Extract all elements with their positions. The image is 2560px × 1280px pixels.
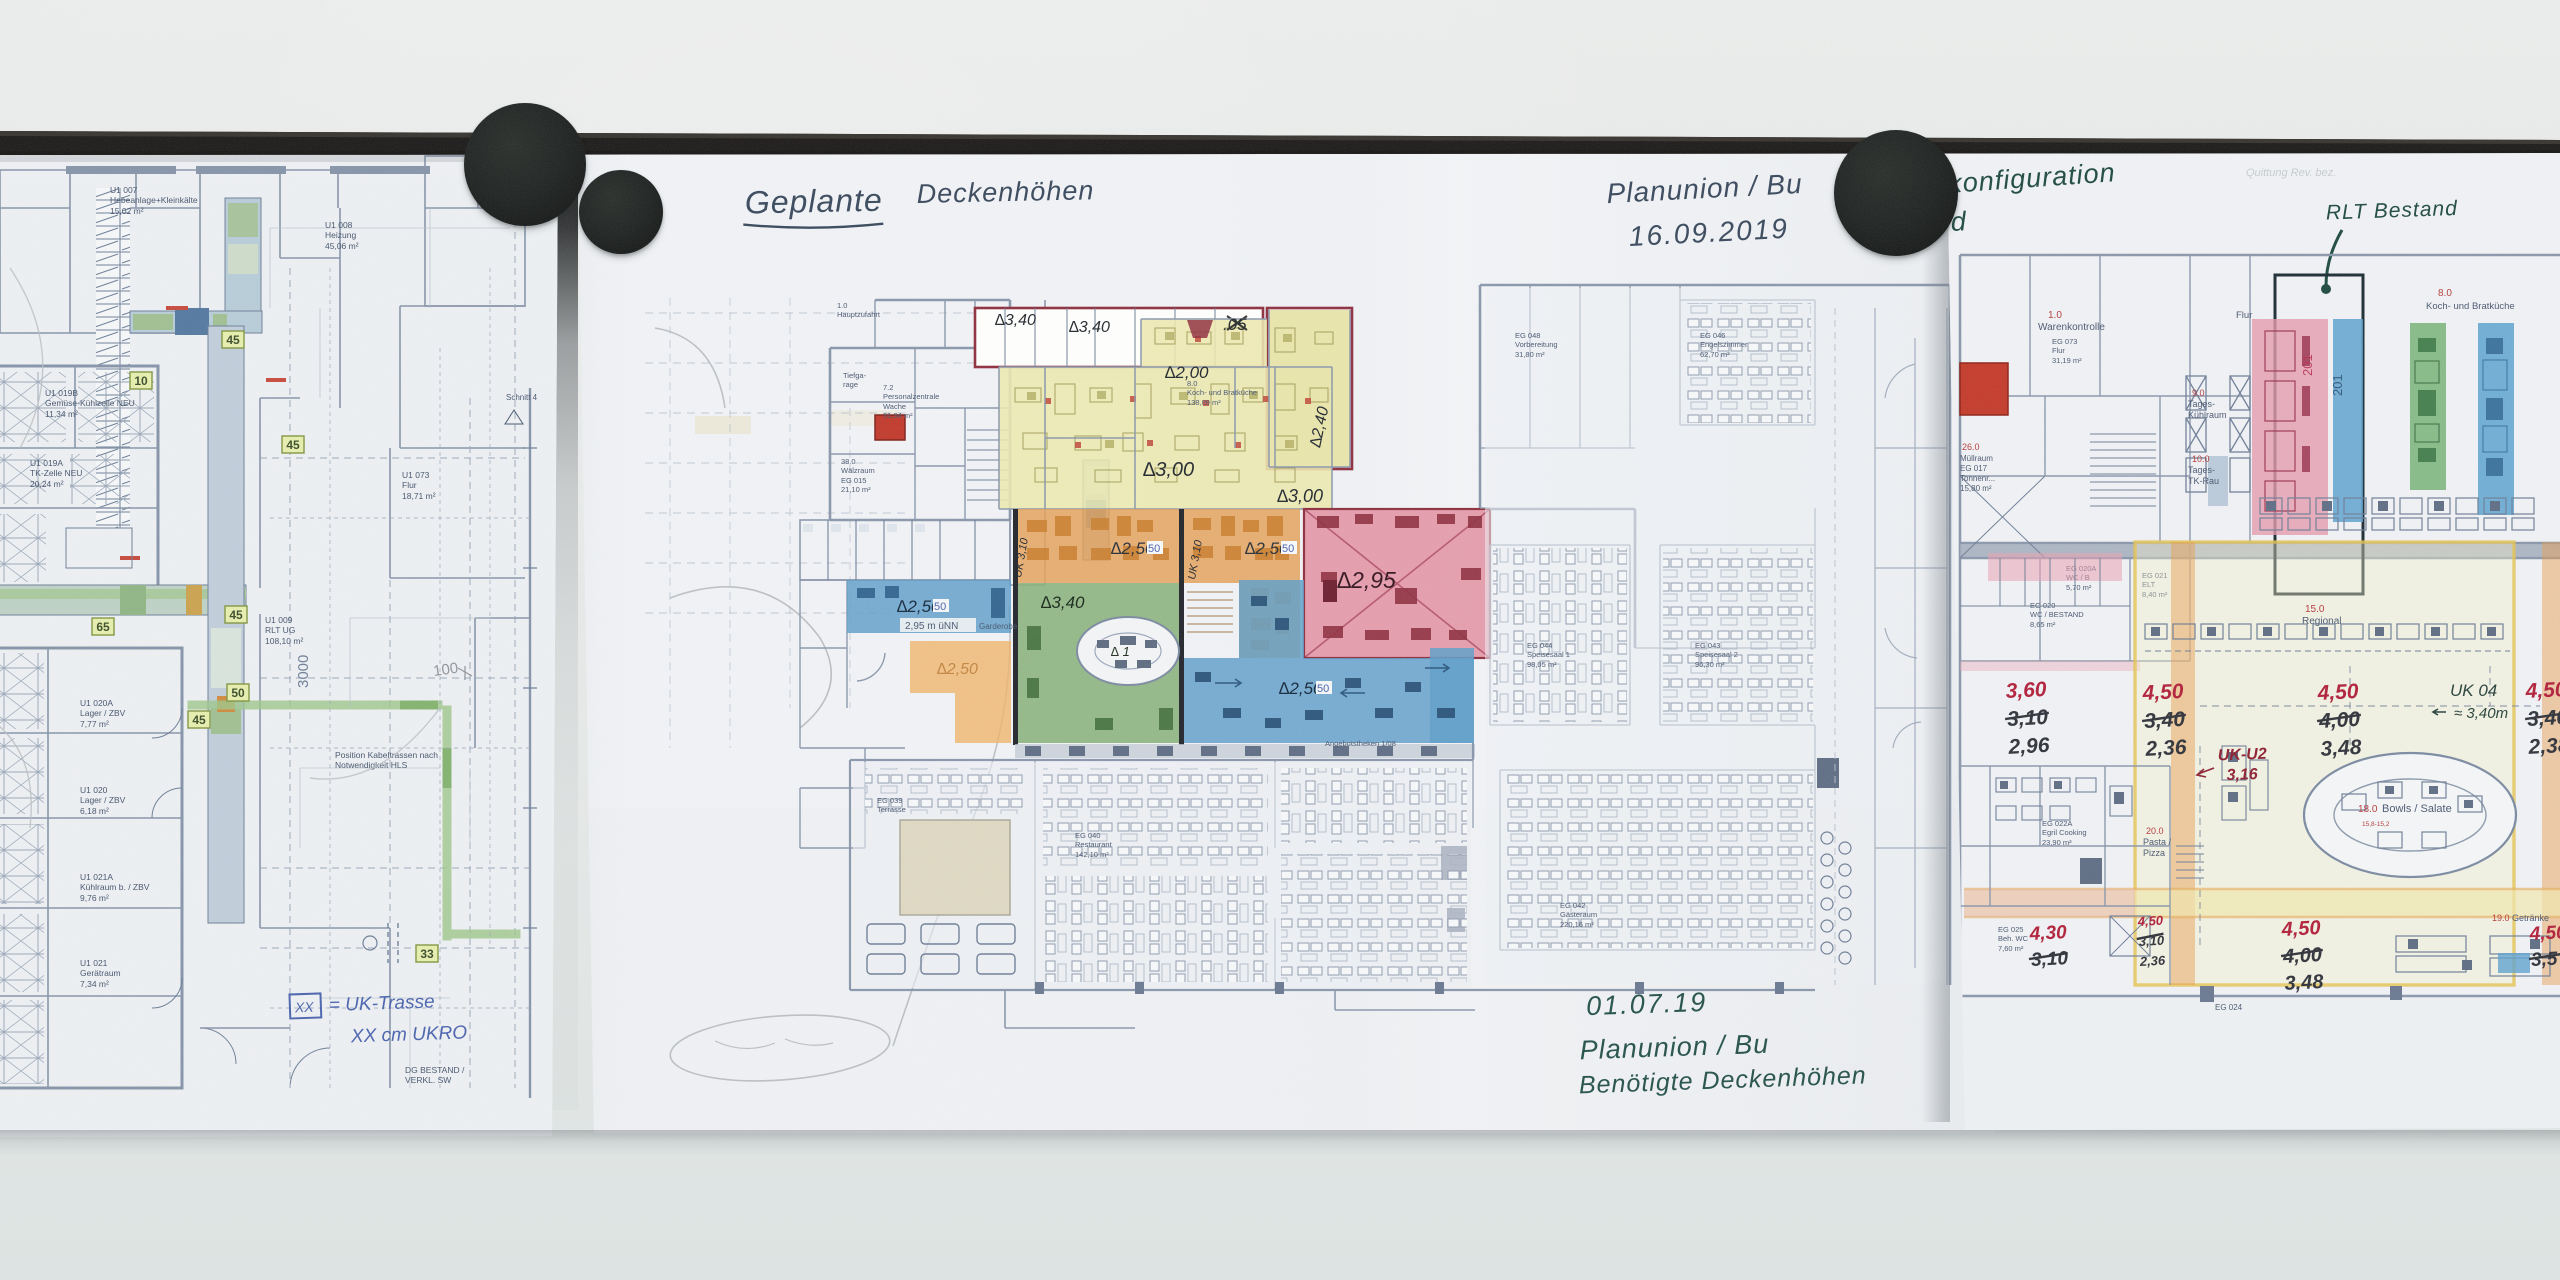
svg-text:Getränke: Getränke bbox=[2512, 913, 2549, 923]
svg-text:Warenkontrolle: Warenkontrolle bbox=[2038, 322, 2105, 333]
svg-text:45: 45 bbox=[226, 333, 240, 347]
svg-text:Gästeraum: Gästeraum bbox=[1560, 910, 1597, 919]
svg-text:19.0: 19.0 bbox=[2492, 913, 2510, 923]
svg-text:23,90 m²: 23,90 m² bbox=[2042, 838, 2072, 847]
svg-text:UK-U2: UK-U2 bbox=[2218, 746, 2268, 765]
svg-text:50: 50 bbox=[934, 601, 946, 613]
svg-text:Gerätraum: Gerätraum bbox=[80, 968, 121, 978]
svg-text:3000: 3000 bbox=[295, 655, 312, 688]
svg-text:Schnitt 4: Schnitt 4 bbox=[506, 393, 538, 402]
svg-text:Flur: Flur bbox=[2052, 346, 2065, 355]
svg-text:2,38: 2,38 bbox=[2527, 734, 2560, 759]
svg-text:U1 007: U1 007 bbox=[110, 185, 138, 195]
svg-text:Tonnenr...: Tonnenr... bbox=[1960, 474, 1995, 483]
svg-text:XX cm UKRO: XX cm UKRO bbox=[350, 1022, 468, 1047]
svg-text:∆3,40: ∆3,40 bbox=[995, 312, 1036, 329]
svg-text:8,65 m²: 8,65 m² bbox=[2030, 620, 2056, 629]
svg-text:18.0: 18.0 bbox=[2358, 804, 2378, 815]
svg-text:108,10 m²: 108,10 m² bbox=[265, 636, 303, 646]
svg-text:DG BESTAND /: DG BESTAND / bbox=[405, 1065, 465, 1075]
svg-text:10.0: 10.0 bbox=[2192, 454, 2210, 464]
svg-text:Kühlraum b. / ZBV: Kühlraum b. / ZBV bbox=[80, 882, 150, 892]
svg-text:201: 201 bbox=[2300, 354, 2315, 376]
svg-text:220,16 m²: 220,16 m² bbox=[1560, 920, 1594, 929]
svg-text:6,18 m²: 6,18 m² bbox=[80, 806, 109, 816]
svg-text:U1 021: U1 021 bbox=[80, 958, 108, 968]
svg-text:U1 019B: U1 019B bbox=[45, 388, 78, 398]
svg-text:∆3,00: ∆3,00 bbox=[1277, 486, 1323, 506]
svg-text:Restaurant: Restaurant bbox=[1075, 840, 1113, 849]
svg-text:8.0: 8.0 bbox=[1187, 379, 1197, 388]
svg-text:50: 50 bbox=[1317, 683, 1329, 695]
svg-text:RLT UG: RLT UG bbox=[265, 625, 295, 635]
svg-text:Engelszimmer: Engelszimmer bbox=[1700, 340, 1748, 349]
svg-text:Angebotstheken 1/08: Angebotstheken 1/08 bbox=[1325, 739, 1396, 748]
svg-text:U1 009: U1 009 bbox=[265, 615, 293, 625]
svg-text:Tages-: Tages- bbox=[2188, 399, 2215, 409]
svg-text:XX: XX bbox=[294, 999, 315, 1016]
svg-text:26.0: 26.0 bbox=[1962, 442, 1980, 452]
svg-text:9,76 m²: 9,76 m² bbox=[80, 893, 109, 903]
svg-text:EG 046: EG 046 bbox=[1700, 331, 1725, 340]
svg-text:2,95 m üNN: 2,95 m üNN bbox=[905, 621, 958, 632]
svg-text:3,5: 3,5 bbox=[2531, 949, 2559, 971]
svg-text:Hauptzufahrt: Hauptzufahrt bbox=[837, 310, 881, 319]
svg-text:Lager / ZBV: Lager / ZBV bbox=[80, 795, 126, 805]
svg-text:U1 020: U1 020 bbox=[80, 785, 108, 795]
svg-text:31,34 m²: 31,34 m² bbox=[883, 411, 913, 420]
svg-text:Terrasse: Terrasse bbox=[877, 805, 906, 814]
svg-text:EG 043: EG 043 bbox=[1695, 641, 1720, 650]
svg-text:98,05 m²: 98,05 m² bbox=[1527, 660, 1557, 669]
svg-text:1.0: 1.0 bbox=[837, 301, 847, 310]
svg-text:7,34 m²: 7,34 m² bbox=[80, 979, 109, 989]
svg-text:Tages-: Tages- bbox=[2188, 465, 2215, 475]
svg-text:138,09 m²: 138,09 m² bbox=[1187, 398, 1221, 407]
svg-text:∆ 1: ∆ 1 bbox=[1111, 644, 1130, 659]
svg-text:U1 073: U1 073 bbox=[402, 470, 430, 480]
svg-text:7.2: 7.2 bbox=[883, 383, 893, 392]
svg-text:3,48: 3,48 bbox=[2284, 971, 2325, 995]
svg-text:Pizza: Pizza bbox=[2143, 848, 2165, 858]
svg-text:= UK-Trasse: = UK-Trasse bbox=[329, 991, 435, 1016]
svg-text:≈ 3,40m: ≈ 3,40m bbox=[2454, 705, 2508, 722]
svg-text:Position Kabeltrassen nach: Position Kabeltrassen nach bbox=[335, 750, 438, 760]
svg-text:8.0: 8.0 bbox=[2438, 288, 2452, 299]
svg-text:21,10 m²: 21,10 m² bbox=[841, 485, 871, 494]
svg-text:33: 33 bbox=[420, 947, 434, 961]
svg-text:5,70 m²: 5,70 m² bbox=[2066, 583, 2092, 592]
svg-text:VERKL. SW: VERKL. SW bbox=[405, 1075, 451, 1085]
svg-text:U1 020A: U1 020A bbox=[80, 698, 113, 708]
svg-text:31,80 m²: 31,80 m² bbox=[1515, 350, 1545, 359]
svg-text:4,30: 4,30 bbox=[2028, 922, 2067, 945]
svg-text:31,19 m²: 31,19 m² bbox=[2052, 356, 2082, 365]
svg-text:50: 50 bbox=[1148, 543, 1160, 555]
svg-text:45: 45 bbox=[192, 713, 206, 727]
svg-text:Wälzraum: Wälzraum bbox=[841, 466, 875, 475]
svg-text:EG 025: EG 025 bbox=[1998, 925, 2023, 934]
svg-text:Deckenhöhen: Deckenhöhen bbox=[916, 175, 1094, 209]
svg-text:∆2,50: ∆2,50 bbox=[937, 661, 978, 678]
svg-text:Personalzentrale: Personalzentrale bbox=[883, 392, 939, 401]
svg-text:62,70 m²: 62,70 m² bbox=[1700, 350, 1730, 359]
svg-text:3,48: 3,48 bbox=[2320, 736, 2362, 761]
svg-text:TK-Zelle NEU: TK-Zelle NEU bbox=[30, 468, 82, 478]
svg-text:EG 039: EG 039 bbox=[877, 796, 902, 805]
svg-text:Pasta /: Pasta / bbox=[2143, 837, 2172, 847]
svg-text:Beh. WC: Beh. WC bbox=[1998, 934, 2029, 943]
svg-text:UK 04: UK 04 bbox=[2450, 681, 2497, 700]
svg-text:15.0: 15.0 bbox=[2305, 604, 2325, 615]
svg-text:45: 45 bbox=[229, 608, 243, 622]
svg-text:Egril Cooking: Egril Cooking bbox=[2042, 828, 2087, 837]
svg-text:2,36: 2,36 bbox=[2138, 953, 2166, 969]
svg-text:EG 024: EG 024 bbox=[2215, 1003, 2243, 1012]
svg-text:U1 008: U1 008 bbox=[325, 220, 353, 230]
svg-text:4,50: 4,50 bbox=[2316, 680, 2359, 705]
svg-text:4,50: 4,50 bbox=[2136, 913, 2164, 929]
svg-text:Speisesaal 2: Speisesaal 2 bbox=[1695, 650, 1738, 659]
svg-text:U1 019A: U1 019A bbox=[30, 458, 63, 468]
svg-text:EG 017: EG 017 bbox=[1960, 464, 1988, 473]
svg-text:TK-Rau: TK-Rau bbox=[2188, 476, 2219, 486]
svg-text:EG 015: EG 015 bbox=[841, 476, 866, 485]
svg-text:EG 042: EG 042 bbox=[1560, 901, 1585, 910]
svg-text:Speisesaal 1: Speisesaal 1 bbox=[1527, 650, 1570, 659]
svg-text:∆2,95: ∆2,95 bbox=[1337, 567, 1396, 593]
svg-text:20,24 m²: 20,24 m² bbox=[30, 479, 64, 489]
svg-text:7,60 m²: 7,60 m² bbox=[1998, 944, 2024, 953]
svg-text:Lager / ZBV: Lager / ZBV bbox=[80, 708, 126, 718]
svg-text:10: 10 bbox=[134, 374, 148, 388]
svg-text:2,36: 2,36 bbox=[2144, 736, 2187, 761]
svg-text:7,77 m²: 7,77 m² bbox=[80, 719, 109, 729]
svg-text:65: 65 bbox=[96, 620, 110, 634]
svg-text:Flur: Flur bbox=[402, 480, 417, 490]
svg-text:3,10: 3,10 bbox=[2031, 948, 2069, 971]
svg-text:9.0: 9.0 bbox=[2192, 388, 2205, 398]
svg-text:50: 50 bbox=[1282, 543, 1294, 555]
svg-text:01.07.19: 01.07.19 bbox=[1586, 987, 1708, 1021]
svg-text:15,80 m²: 15,80 m² bbox=[1960, 484, 1992, 493]
svg-text:Koch- und Bratküche: Koch- und Bratküche bbox=[1187, 388, 1257, 397]
svg-text:96,30 m²: 96,30 m² bbox=[1695, 660, 1725, 669]
svg-text:50: 50 bbox=[231, 686, 245, 700]
svg-text:Gemüse-Kühlzelle NEU: Gemüse-Kühlzelle NEU bbox=[45, 398, 135, 408]
svg-text:18,71 m²: 18,71 m² bbox=[402, 491, 436, 501]
svg-text:2,96: 2,96 bbox=[2007, 734, 2050, 759]
svg-text:45,06 m²: 45,06 m² bbox=[325, 241, 359, 251]
svg-text:3,16: 3,16 bbox=[2226, 766, 2258, 784]
svg-text:EG 022A: EG 022A bbox=[2042, 819, 2072, 828]
svg-text:Hebeanlage+Kleinkälte: Hebeanlage+Kleinkälte bbox=[110, 195, 198, 205]
svg-text:Bowls / Salate: Bowls / Salate bbox=[2382, 803, 2452, 815]
svg-text:4,50: 4,50 bbox=[2528, 922, 2560, 945]
svg-text:Koch- und Bratküche: Koch- und Bratküche bbox=[2426, 301, 2515, 312]
svg-text:1.0: 1.0 bbox=[2048, 310, 2062, 321]
svg-text:Tiefga-: Tiefga- bbox=[843, 371, 867, 380]
svg-text:201: 201 bbox=[2330, 374, 2345, 396]
svg-text:EG 048: EG 048 bbox=[1515, 331, 1540, 340]
svg-text:EG 073: EG 073 bbox=[2052, 337, 2077, 346]
svg-text:4,50: 4,50 bbox=[2141, 680, 2184, 705]
svg-text:Wache: Wache bbox=[883, 402, 906, 411]
svg-text:rage: rage bbox=[843, 380, 858, 389]
svg-text:3,60: 3,60 bbox=[2005, 678, 2047, 703]
svg-text:15,8-15,2: 15,8-15,2 bbox=[2362, 821, 2390, 828]
svg-text:EG 040: EG 040 bbox=[1075, 831, 1100, 840]
svg-text:EG 044: EG 044 bbox=[1527, 641, 1552, 650]
svg-text:Garderobe: Garderobe bbox=[979, 622, 1018, 631]
svg-text:RLT Bestand: RLT Bestand bbox=[2325, 197, 2458, 225]
svg-text:45: 45 bbox=[286, 438, 300, 452]
svg-text:100: 100 bbox=[432, 660, 459, 680]
svg-text:WC / BESTAND: WC / BESTAND bbox=[2030, 610, 2084, 619]
svg-text:20.0: 20.0 bbox=[2146, 826, 2164, 836]
svg-text:Flur: Flur bbox=[2236, 310, 2252, 321]
svg-text:Kühlraum: Kühlraum bbox=[2188, 410, 2227, 420]
svg-text:Vorbereitung: Vorbereitung bbox=[1515, 340, 1558, 349]
svg-text:Heizung: Heizung bbox=[325, 230, 356, 240]
svg-text:U1 021A: U1 021A bbox=[80, 872, 113, 882]
svg-text:15,02 m²: 15,02 m² bbox=[110, 206, 144, 216]
svg-text:38.0: 38.0 bbox=[841, 457, 856, 466]
svg-text:Müllraum: Müllraum bbox=[1960, 454, 1993, 463]
svg-text:∆3,00: ∆3,00 bbox=[1143, 459, 1194, 481]
svg-text:142,10 m²: 142,10 m² bbox=[1075, 850, 1109, 859]
svg-text:.05: .05 bbox=[1223, 315, 1247, 334]
svg-text:11,34 m²: 11,34 m² bbox=[45, 409, 78, 419]
svg-text:4,50: 4,50 bbox=[2524, 678, 2560, 703]
svg-text:∆3,40: ∆3,40 bbox=[1041, 593, 1085, 612]
svg-text:Geplante: Geplante bbox=[744, 182, 883, 221]
svg-text:4,50: 4,50 bbox=[2280, 917, 2321, 941]
